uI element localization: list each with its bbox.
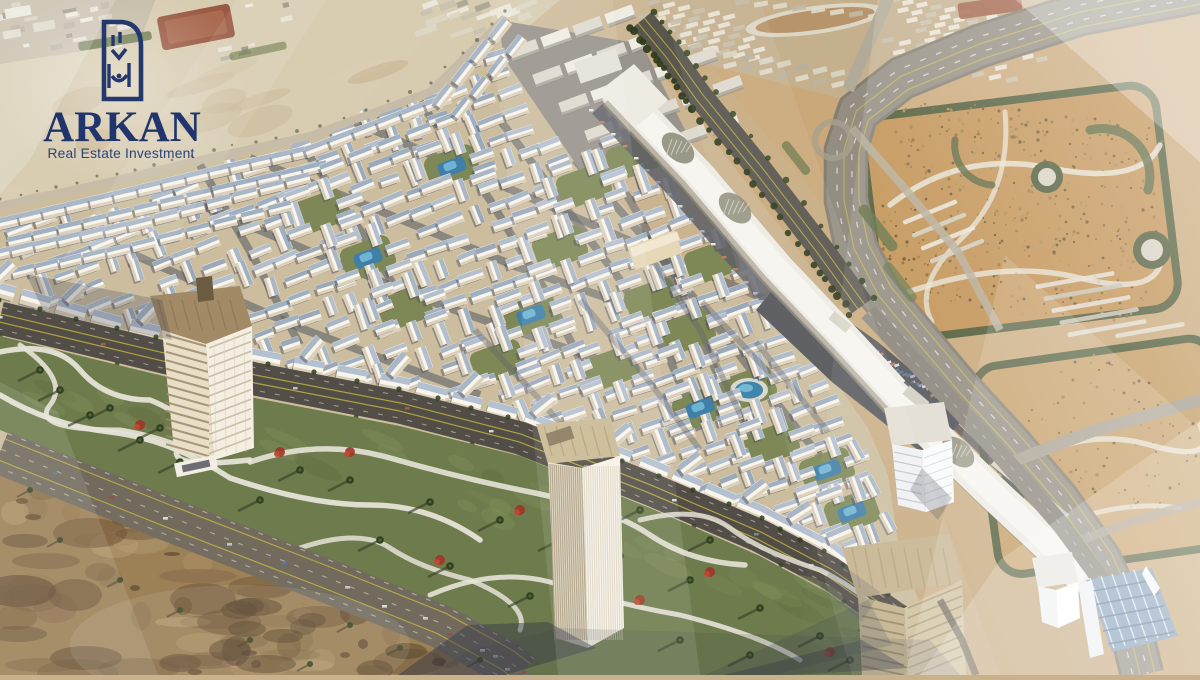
svg-text:Real Estate Investment: Real Estate Investment (47, 146, 194, 161)
svg-text:ARKAN: ARKAN (43, 104, 201, 151)
